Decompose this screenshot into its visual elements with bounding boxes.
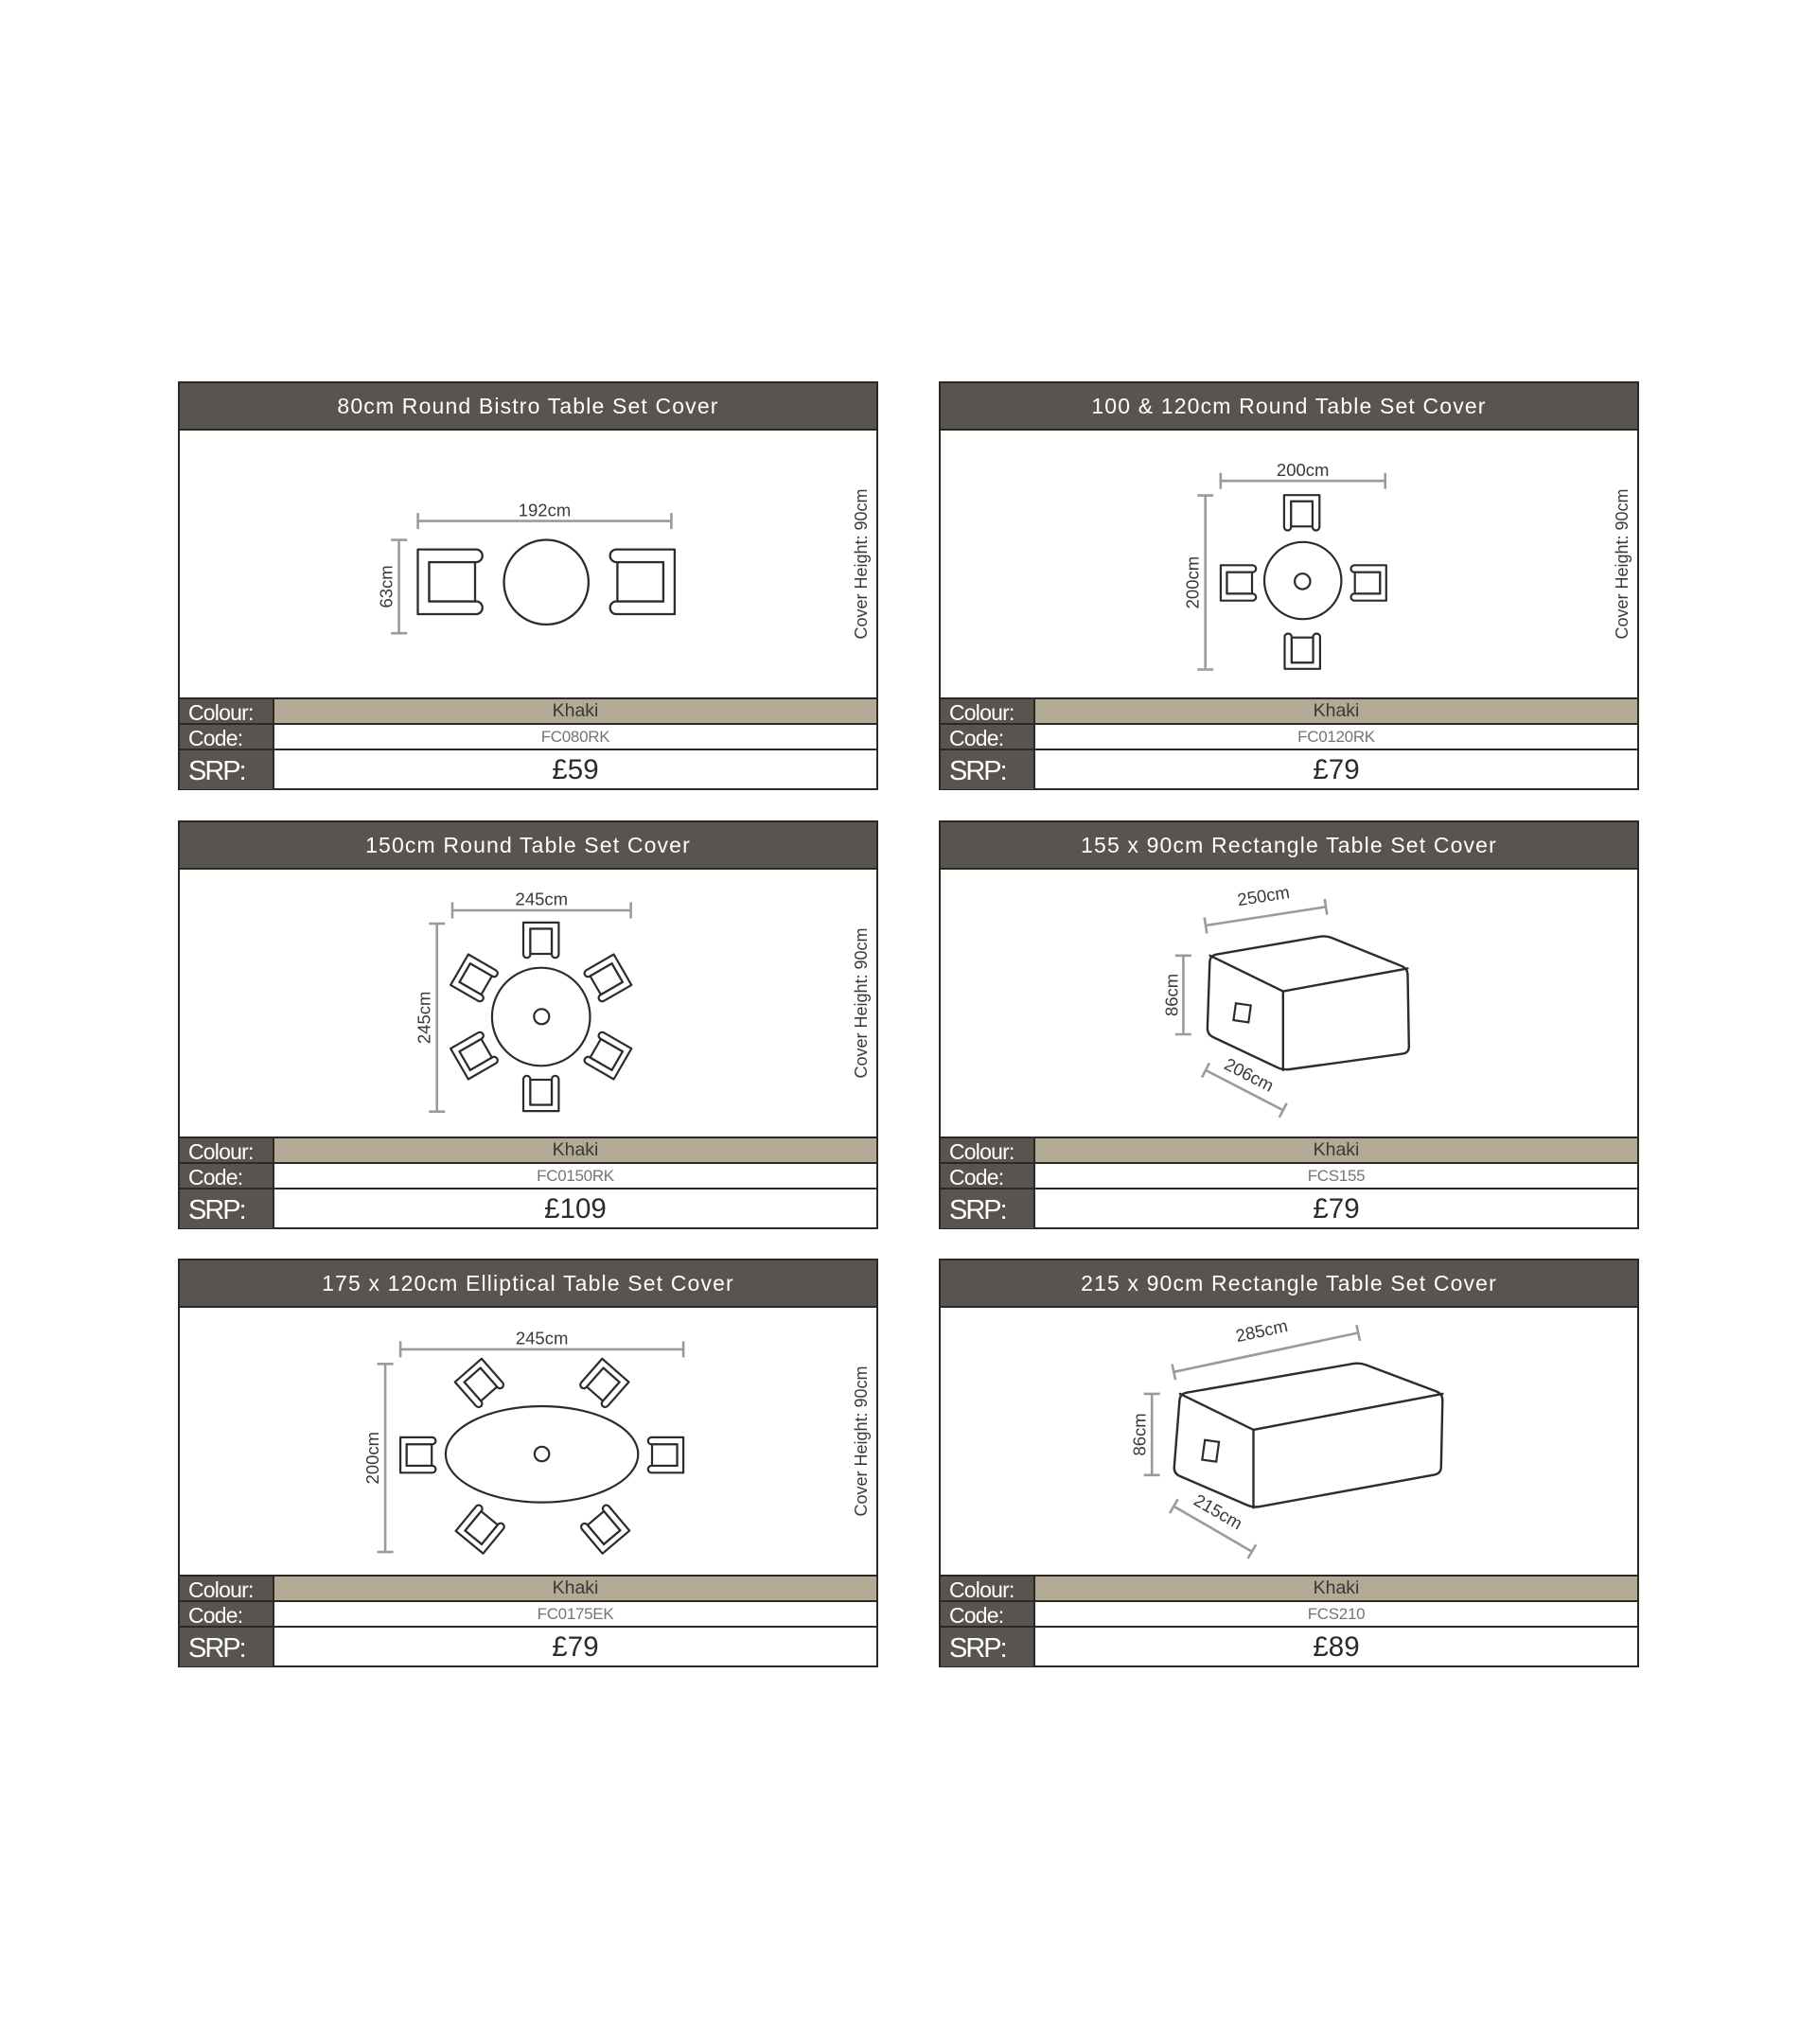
svg-text:Cover Height: 90cm: Cover Height: 90cm	[852, 927, 871, 1078]
svg-text:245cm: 245cm	[516, 1328, 569, 1348]
svg-text:86cm: 86cm	[1130, 1413, 1150, 1455]
svg-text:Cover Height: 90cm: Cover Height: 90cm	[1613, 488, 1632, 639]
svg-text:63cm: 63cm	[377, 565, 397, 608]
svg-text:Cover Height: 90cm: Cover Height: 90cm	[852, 488, 871, 639]
svg-text:Cover Height: 90cm: Cover Height: 90cm	[852, 1366, 871, 1516]
svg-text:200cm: 200cm	[362, 1432, 382, 1485]
svg-text:285cm: 285cm	[1234, 1315, 1290, 1346]
svg-text:200cm: 200cm	[1183, 556, 1203, 609]
svg-text:245cm: 245cm	[415, 992, 434, 1045]
svg-text:200cm: 200cm	[1277, 460, 1330, 480]
svg-text:86cm: 86cm	[1162, 974, 1182, 1016]
svg-text:192cm: 192cm	[519, 501, 572, 520]
svg-text:245cm: 245cm	[516, 890, 569, 909]
svg-text:250cm: 250cm	[1236, 882, 1291, 909]
